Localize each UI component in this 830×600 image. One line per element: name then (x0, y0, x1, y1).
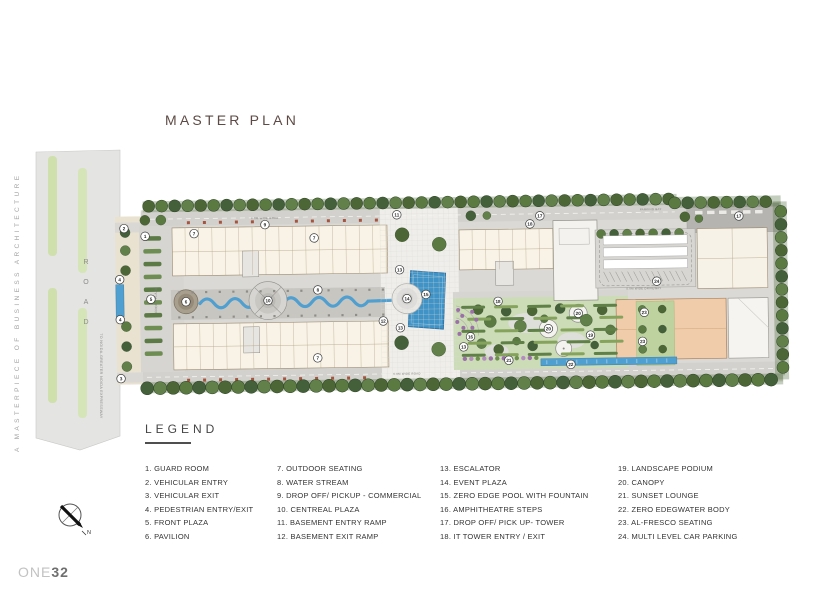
basement-ramp (243, 327, 259, 353)
tree-icon (442, 196, 454, 208)
tree-icon (700, 374, 713, 387)
column-dot (178, 291, 180, 293)
column-dot (300, 290, 302, 292)
tree-icon (273, 198, 285, 210)
tree-icon (622, 375, 635, 388)
column-dot (273, 290, 275, 292)
tree-icon (596, 375, 609, 388)
tree-icon (559, 194, 571, 206)
tree-icon (349, 379, 362, 392)
car-stall (719, 210, 727, 214)
tree-icon (507, 195, 519, 207)
tree-icon (182, 200, 194, 212)
tree-icon (395, 228, 409, 242)
tree-icon (760, 196, 772, 208)
car-stall (695, 211, 703, 215)
tree-icon (143, 200, 155, 212)
podium-hedge (495, 353, 519, 356)
tree-icon (247, 199, 259, 211)
tree-icon (520, 195, 532, 207)
tree-icon (650, 193, 662, 205)
column-dot (205, 291, 207, 293)
legend-item: 23. AL-FRESCO SEATING (618, 516, 788, 530)
page: A MASTERPIECE OF BUSINESS ARCHITECTURE M… (0, 0, 830, 600)
tree-icon (323, 379, 336, 392)
badge-number: 12 (381, 319, 387, 324)
podium-hedge (461, 330, 485, 333)
badge-number: 18 (495, 299, 501, 304)
column-dot (178, 316, 180, 318)
tree-icon (286, 198, 298, 210)
tree-icon (570, 376, 583, 389)
hedge-bar (145, 351, 163, 356)
podium-hedge (462, 354, 486, 357)
hedge-bar (144, 274, 162, 279)
tower-white-block (728, 298, 769, 359)
parking-bay (603, 259, 687, 269)
tree-icon (776, 283, 788, 295)
column-dot (259, 290, 261, 292)
hedge-bar (145, 338, 163, 343)
podium-hedge (560, 304, 584, 307)
podium-hedge (468, 341, 492, 344)
tree-icon (466, 377, 479, 390)
entry-pool (116, 285, 124, 317)
seating-mark (295, 220, 298, 223)
hedge-bar (143, 249, 161, 254)
column-dot (219, 316, 221, 318)
seating-mark (203, 378, 206, 381)
seating-mark (187, 221, 190, 224)
tree-icon (195, 199, 207, 211)
legend-item: 21. SUNSET LOUNGE (618, 489, 788, 503)
tree-icon (453, 377, 466, 390)
tree-icon (572, 194, 584, 206)
tree-icon (598, 194, 610, 206)
tree-icon (544, 376, 557, 389)
tree-icon (271, 380, 284, 393)
tree-icon (777, 335, 789, 347)
legend-item: 22. ZERO EDEGWATER BODY (618, 503, 788, 517)
seating-mark (327, 219, 330, 222)
hedge-bar (144, 326, 162, 331)
legend-item: 17. DROP OFF/ PICK UP- TOWER (440, 516, 610, 530)
tree-icon (776, 270, 788, 282)
car-stall (707, 210, 715, 214)
tree-icon (167, 381, 180, 394)
column-dot (314, 314, 316, 316)
tree-icon (483, 211, 491, 219)
brand-logo: ONE32 (18, 564, 69, 580)
tree-icon (154, 382, 167, 395)
podium-hedge (533, 317, 557, 320)
seating-mark (219, 221, 222, 224)
tree-icon (140, 215, 150, 225)
tree-icon (546, 195, 558, 207)
side-tagline: A MASTERPIECE OF BUSINESS ARCHITECTURE (14, 173, 21, 452)
badge-number: 21 (506, 358, 512, 363)
tree-icon (777, 361, 789, 373)
column-dot (341, 289, 343, 291)
legend-item: 8. WATER STREAM (277, 476, 447, 490)
seating-mark (251, 220, 254, 223)
tree-icon (680, 212, 690, 222)
podium-hedge (461, 306, 485, 309)
tree-icon (713, 374, 726, 387)
road-map: ROAD TO NOIDA-GREATER NOIDA EXPRESSWAY (34, 148, 126, 458)
tree-icon (609, 375, 622, 388)
legend-item: 13. ESCALATOR (440, 462, 610, 476)
seating-mark (267, 378, 270, 381)
tree-icon (193, 381, 206, 394)
tree-icon (505, 377, 518, 390)
tree-icon (468, 196, 480, 208)
podium-hedge (527, 305, 551, 308)
legend-item: 9. DROP OFF/ PICKUP - COMMERCIAL (277, 489, 447, 503)
tree-icon (432, 237, 446, 251)
tree-icon (260, 199, 272, 211)
tree-icon (776, 296, 788, 308)
tree-icon (141, 382, 154, 395)
tree-icon (708, 196, 720, 208)
tree-icon (479, 377, 492, 390)
master-plan-drawing: FRONT PLAZA6.0M WIDE ROAD6.0M WIDE ROADP… (115, 187, 794, 411)
legend-column-4: 19. LANDSCAPE PODIUM20. CANOPY21. SUNSET… (618, 462, 788, 543)
column-dot (287, 290, 289, 292)
tree-icon (557, 376, 570, 389)
tree-icon (388, 378, 401, 391)
tree-icon (775, 257, 787, 269)
it-tower-block (553, 220, 598, 301)
legend-item: 18. IT TOWER ENTRY / EXIT (440, 530, 610, 544)
seating-mark (311, 219, 314, 222)
car-stall (743, 210, 751, 214)
column-dot (382, 313, 384, 315)
seating-mark (219, 378, 222, 381)
legend-item: 11. BASEMENT ENTRY RAMP (277, 516, 447, 530)
tree-icon (669, 197, 681, 209)
tree-icon (284, 380, 297, 393)
tree-icon (325, 198, 337, 210)
podium-hedge (467, 317, 491, 320)
tree-icon (297, 380, 310, 393)
podium-hedge (494, 329, 518, 332)
podium-hedge (534, 341, 558, 344)
north-label: N (87, 530, 91, 536)
tree-icon (739, 373, 752, 386)
badge-number: 20 (576, 311, 582, 316)
tree-icon (375, 378, 388, 391)
badge-number: 24 (654, 279, 660, 284)
seating-mark (283, 377, 286, 380)
legend-column-2: 7. OUTDOOR SEATING8. WATER STREAM9. DROP… (277, 462, 447, 543)
column-dot (219, 291, 221, 293)
podium-hedge (600, 340, 624, 343)
tree-icon (721, 196, 733, 208)
badge-number: 13 (397, 267, 403, 272)
tree-icon (611, 194, 623, 206)
badge-number: 22 (568, 362, 574, 367)
tree-icon (674, 374, 687, 387)
tree-icon (533, 195, 545, 207)
podium-hedge (561, 352, 585, 355)
tree-icon (580, 314, 592, 326)
road-direction-label: TO NOIDA-GREATER NOIDA EXPRESSWAY (99, 333, 103, 419)
tree-icon (624, 193, 636, 205)
column-dot (369, 314, 371, 316)
hedge-bar (143, 262, 161, 267)
tree-icon (776, 309, 788, 321)
legend-heading: LEGEND (145, 422, 218, 436)
tree-icon (585, 194, 597, 206)
tree-icon (484, 315, 496, 327)
column-dot (192, 316, 194, 318)
badge-number: 16 (468, 334, 474, 339)
tree-icon (531, 376, 544, 389)
parking-bay (603, 235, 687, 245)
badge-number: 20 (546, 326, 552, 331)
legend-column-3: 13. ESCALATOR14. EVENT PLAZA15. ZERO EDG… (440, 462, 610, 543)
car-stall (755, 210, 763, 214)
tree-icon (455, 196, 467, 208)
badge-number: 19 (588, 333, 594, 338)
tree-icon (637, 193, 649, 205)
tree-icon (775, 244, 787, 256)
badge-number: 23 (642, 310, 648, 315)
tree-icon (432, 342, 446, 356)
tree-icon (687, 374, 700, 387)
tree-icon (639, 345, 647, 353)
podium-hedge (567, 340, 591, 343)
tree-icon (208, 199, 220, 211)
tree-icon (734, 196, 746, 208)
plan-label: 6.0M WIDE ROAD (251, 216, 278, 220)
column-dot (382, 288, 384, 290)
tree-icon (466, 211, 476, 221)
tree-icon (169, 200, 181, 212)
tree-icon (156, 215, 166, 225)
tree-icon (695, 196, 707, 208)
legend-item: 7. OUTDOOR SEATING (277, 462, 447, 476)
tree-icon (234, 199, 246, 211)
legend: LEGEND 1. GUARD ROOM2. VEHICULAR ENTRY3.… (145, 422, 218, 444)
tree-icon (377, 197, 389, 209)
tree-icon (682, 197, 694, 209)
tree-icon (429, 196, 441, 208)
tree-icon (219, 381, 232, 394)
logo-suffix: 32 (51, 564, 69, 580)
badge-number: 11 (394, 212, 399, 217)
tree-icon (258, 380, 271, 393)
tree-icon (661, 374, 674, 387)
tree-icon (775, 231, 787, 243)
seating-mark (359, 219, 362, 222)
legend-item: 20. CANOPY (618, 476, 788, 490)
column-dot (232, 291, 234, 293)
tree-icon (775, 205, 787, 217)
tree-icon (648, 375, 661, 388)
badge-number: 10 (265, 298, 271, 303)
legend-item: 14. EVENT PLAZA (440, 476, 610, 490)
basement-ramp (242, 251, 258, 277)
tree-icon (362, 379, 375, 392)
tree-icon (299, 198, 311, 210)
column-dot (355, 289, 357, 291)
tree-icon (120, 266, 130, 276)
plan-label: 6.0M WIDE ROAD (393, 371, 420, 375)
tree-icon (395, 336, 409, 350)
tree-icon (232, 380, 245, 393)
tree-icon (221, 199, 233, 211)
tree-icon (338, 197, 350, 209)
tree-icon (390, 197, 402, 209)
north-compass-icon: N (48, 498, 96, 546)
column-dot (368, 289, 370, 291)
tree-icon (120, 246, 130, 256)
tree-icon (206, 381, 219, 394)
podium-hedge (501, 341, 525, 344)
tree-icon (440, 378, 453, 391)
legend-item: 10. CENTREAL PLAZA (277, 503, 447, 517)
column-dot (246, 315, 248, 317)
legend-item: 15. ZERO EDGE POOL WITH FOUNTAIN (440, 489, 610, 503)
tree-icon (635, 375, 648, 388)
plan-label: 5.0M WIDE DRIVEWAY (626, 286, 661, 290)
tree-icon (638, 325, 646, 333)
badge-number: 13 (461, 345, 467, 350)
column-dot (341, 314, 343, 316)
escalator-core (495, 261, 513, 285)
seating-mark (203, 221, 206, 224)
column-dot (328, 314, 330, 316)
plan-label: PARKING BAY (640, 207, 662, 211)
tree-icon (765, 373, 778, 386)
badge-number: 15 (423, 292, 429, 297)
tree-icon (695, 215, 703, 223)
seating-mark (375, 219, 378, 222)
tree-icon (752, 373, 765, 386)
tree-icon (494, 195, 506, 207)
tree-icon (312, 198, 324, 210)
column-dot (301, 315, 303, 317)
tree-icon (747, 196, 759, 208)
badge-number: 17 (736, 214, 742, 219)
tree-icon (658, 325, 666, 333)
parking-bay (603, 247, 687, 257)
tree-icon (403, 197, 415, 209)
road-letter: R (83, 259, 88, 266)
column-dot (287, 315, 289, 317)
tree-icon (401, 378, 414, 391)
tree-icon (659, 345, 667, 353)
podium-hedge (500, 317, 524, 320)
tree-icon (658, 305, 666, 313)
tree-icon (518, 376, 531, 389)
column-dot (355, 314, 357, 316)
tree-icon (726, 374, 739, 387)
tree-icon (492, 377, 505, 390)
seating-mark (331, 377, 334, 380)
road-letter: D (83, 319, 88, 326)
page-title: MASTER PLAN (165, 112, 299, 128)
seating-mark (235, 221, 238, 224)
podium-hedge (593, 328, 617, 331)
tree-icon (122, 362, 132, 372)
podium-hedge (528, 353, 552, 356)
tree-icon (122, 342, 132, 352)
podium-hedge (599, 316, 623, 319)
road-letter: A (84, 299, 89, 306)
column-dot (246, 290, 248, 292)
tree-icon (427, 378, 440, 391)
tree-icon (777, 348, 789, 360)
column-dot (273, 315, 275, 317)
seating-mark (343, 219, 346, 222)
badge-number: 14 (404, 296, 410, 301)
legend-item: 16. AMPHITHEATRE STEPS (440, 503, 610, 517)
column-dot (233, 316, 235, 318)
badge-number: 17 (537, 213, 543, 218)
tree-icon (414, 378, 427, 391)
legend-rule (145, 442, 191, 444)
tree-icon (310, 379, 323, 392)
tree-icon (351, 197, 363, 209)
tree-icon (336, 379, 349, 392)
tree-icon (583, 376, 596, 389)
column-dot (191, 291, 193, 293)
badge-number: 23 (640, 339, 646, 344)
tree-icon (416, 196, 428, 208)
tree-icon (776, 322, 788, 334)
tree-icon (180, 381, 193, 394)
tree-icon (245, 380, 258, 393)
tree-icon (591, 341, 599, 349)
seating-mark (363, 376, 366, 379)
logo-prefix: ONE (18, 564, 51, 580)
column-dot (205, 316, 207, 318)
tree-icon (481, 195, 493, 207)
road-letter: O (83, 279, 89, 286)
tree-icon (364, 197, 376, 209)
tree-icon (775, 218, 787, 230)
seating-mark (347, 376, 350, 379)
badge-number: 18 (527, 222, 533, 227)
tree-icon (156, 200, 168, 212)
column-dot (260, 315, 262, 317)
column-dot (327, 289, 329, 291)
podium-hedge (594, 352, 618, 355)
podium-hedge (560, 328, 584, 331)
tree-icon (494, 344, 504, 354)
legend-item: 19. LANDSCAPE PODIUM (618, 462, 788, 476)
legend-item: 12. BASEMENT EXIT RAMP (277, 530, 447, 544)
podium-hedge (593, 304, 617, 307)
legend-item: 24. MULTI LEVEL CAR PARKING (618, 530, 788, 544)
badge-number: 13 (398, 325, 404, 330)
